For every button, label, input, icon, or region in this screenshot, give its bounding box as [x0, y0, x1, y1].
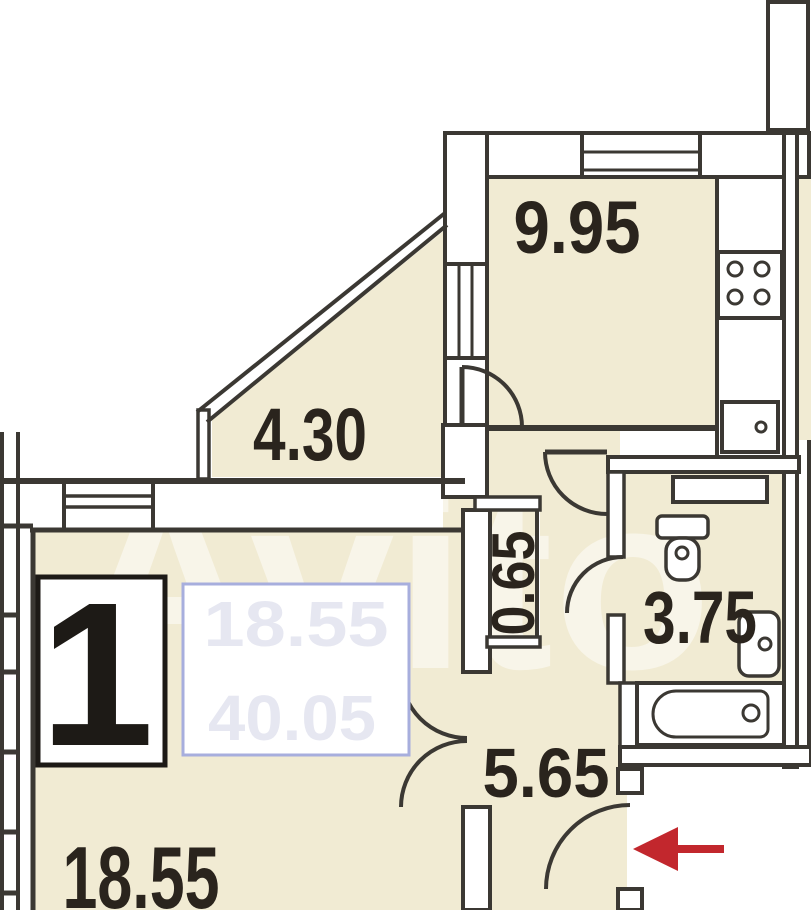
kitchen-doorway	[443, 425, 487, 497]
duct-area-label: 0.65	[480, 531, 547, 636]
wall-bathroom-left-b	[608, 615, 624, 683]
neighbor-floor	[797, 133, 811, 440]
balcony-area-label: 4.30	[253, 393, 367, 476]
wall-bathroom-left-c	[620, 683, 637, 747]
vent-duct-box	[673, 477, 767, 502]
privacy-cover: 18.55 40.05	[183, 584, 409, 755]
covered-value-top: 18.55	[204, 588, 389, 660]
toilet-icon	[657, 516, 708, 580]
living-room-area-label: 18.55	[63, 828, 220, 910]
wall-kitchen-right	[784, 133, 797, 767]
unit-number-box: 1	[38, 560, 165, 789]
wall-bathroom-top	[608, 457, 799, 472]
wall-top-right-vertical	[768, 2, 808, 130]
kitchen-area-label: 9.95	[514, 186, 641, 269]
wall-room-hall-lower	[463, 807, 490, 910]
entrance-jamb-bottom	[618, 889, 642, 910]
bathroom-area-label: 3.75	[643, 576, 757, 659]
covered-value-bottom: 40.05	[208, 682, 376, 754]
entrance-jamb-top	[618, 769, 642, 793]
stove-icon	[718, 252, 782, 318]
hallway-area-label: 5.65	[483, 734, 610, 812]
floor-plan: Avito	[0, 0, 811, 910]
duct-cap-bottom	[487, 637, 540, 647]
duct-cap-top	[475, 497, 540, 510]
wall-kitchen-left	[445, 133, 487, 425]
kitchen-sink-icon	[722, 402, 778, 452]
wall-bath-bottom	[620, 747, 811, 765]
bathtub-icon	[637, 683, 784, 745]
entrance-arrow-icon	[633, 827, 724, 871]
unit-number: 1	[40, 560, 154, 789]
wall-bathroom-left-a	[608, 472, 624, 557]
